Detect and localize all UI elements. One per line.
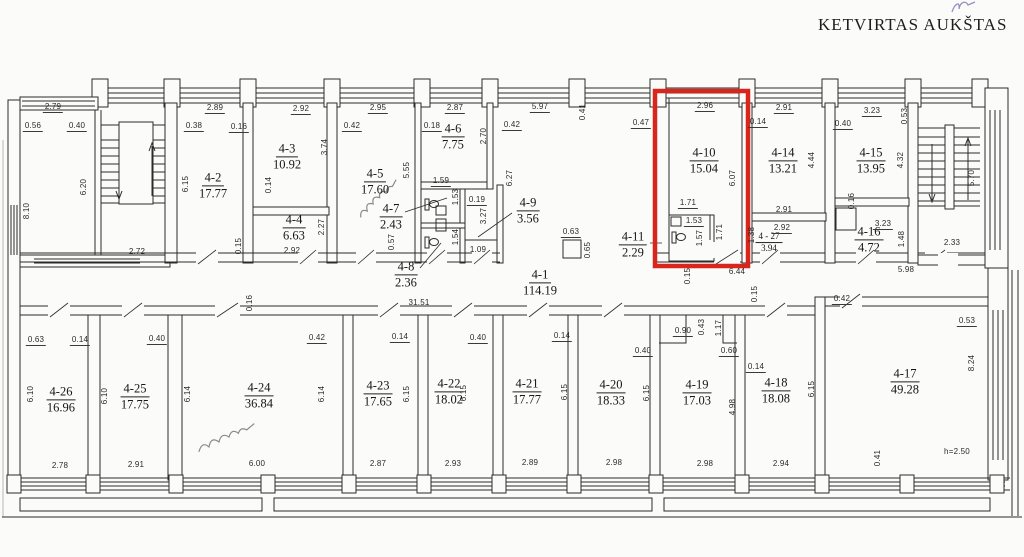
dim-label: 5.97: [530, 103, 550, 113]
room-area: 13.21: [769, 162, 797, 176]
room-label-4-9: 4-93.56: [517, 196, 540, 225]
dim-label: 4.44: [808, 152, 816, 168]
dim-label: 31.51: [408, 299, 429, 307]
room-area: 18.08: [762, 392, 790, 406]
dim-label: 8.24: [968, 355, 976, 371]
dim-label: 0.65: [584, 242, 592, 258]
room-id: 4-15: [857, 146, 886, 161]
room-area: 3.56: [517, 212, 539, 226]
room-area: 49.28: [891, 383, 919, 397]
south-wall: [2, 475, 1022, 517]
room-area: 16.96: [47, 401, 75, 415]
room-label-4-27: 4 - 273.94: [756, 232, 783, 254]
room-label-4-3: 4-310.92: [273, 142, 301, 171]
page-title: KETVIRTAS AUKŠTAS: [818, 15, 1007, 35]
dim-label: 2.79: [43, 103, 63, 113]
room-label-4-25: 4-2517.75: [121, 382, 150, 411]
dim-label: 2.72: [129, 248, 145, 256]
dim-label: 6.20: [80, 179, 88, 195]
room-label-4-21: 4-2117.77: [513, 377, 542, 406]
dim-label: 0.14: [265, 177, 273, 193]
room-label-4-26: 4-2616.96: [47, 385, 76, 414]
room-label-4-6: 4-67.75: [442, 122, 465, 151]
dim-label: 6.10: [101, 388, 109, 404]
dim-label: 0.14: [748, 118, 768, 128]
dim-label: 0.57: [388, 234, 396, 250]
room-area: 17.77: [513, 393, 541, 407]
dim-label: 1.17: [715, 320, 723, 336]
dim-label: 0.38: [184, 122, 204, 132]
dim-label: 1.53: [452, 189, 460, 205]
dim-label: 2.87: [370, 460, 386, 468]
room-area: 17.77: [199, 187, 227, 201]
dim-label: 0.14: [552, 332, 572, 342]
dim-label: 0.14: [746, 363, 766, 373]
east-balcony-lines: [1012, 270, 1018, 516]
east-wall: [985, 88, 1018, 516]
dim-label: 6.15: [182, 176, 190, 192]
dim-label: 0.60: [719, 347, 739, 357]
dim-label: 0.63: [26, 336, 46, 346]
dim-label: 4.98: [729, 399, 737, 415]
dim-label: 1.71: [716, 224, 724, 240]
balcony-band: [274, 498, 652, 511]
dim-label: 6.14: [184, 386, 192, 402]
dim-label: 0.15: [235, 238, 243, 254]
dim-label: 3.74: [321, 139, 329, 155]
room-label-4-20: 4-2018.33: [597, 378, 626, 407]
dim-label: 2.89: [205, 104, 225, 114]
room-id: 4-21: [513, 377, 542, 392]
dim-label: 6.44: [729, 268, 745, 276]
dim-label: 6.15: [808, 381, 816, 397]
dim-label: 0.40: [468, 334, 488, 344]
room-id: 4-18: [762, 376, 791, 391]
dim-label: 0.40: [67, 122, 87, 132]
dim-label: 0.15: [751, 286, 759, 302]
room-id: 4-1: [529, 268, 552, 283]
room-area: 15.04: [690, 162, 718, 176]
dim-label: 5.98: [898, 266, 914, 274]
room-area: 2.36: [395, 276, 417, 290]
room-area: 17.65: [364, 395, 392, 409]
corridor-column: [563, 240, 581, 258]
dim-label: 6.15: [643, 385, 651, 401]
dim-label: 3.23: [873, 220, 893, 230]
room-label-4-2: 4-217.77: [199, 171, 227, 200]
balcony-band: [664, 498, 990, 511]
room-area: 17.03: [683, 394, 711, 408]
dim-label: 0.42: [502, 121, 522, 131]
room-id: 4-2: [202, 171, 225, 186]
dim-label: 0.43: [698, 319, 706, 335]
dim-label: 2.91: [128, 461, 144, 469]
dim-label: 6.00: [249, 460, 265, 468]
room-area: 17.75: [121, 398, 149, 412]
dim-label: 1.57: [696, 230, 704, 246]
room-area: 10.92: [273, 158, 301, 172]
room-id: 4-8: [395, 260, 418, 275]
dim-label: 0.41: [579, 104, 587, 120]
room-id: 4-20: [597, 378, 626, 393]
dim-label: 6.15: [403, 386, 411, 402]
room-id: 4-23: [364, 379, 393, 394]
dim-label: 0.15: [684, 268, 692, 284]
room-label-4-24: 4-2436.84: [245, 381, 274, 410]
dim-label: 3.23: [862, 107, 882, 117]
room-id: 4-9: [517, 196, 540, 211]
dim-label: 3.27: [480, 208, 488, 224]
room-area: 17.60: [361, 183, 389, 197]
dim-label: 2.78: [52, 462, 68, 470]
room-area: 2.43: [380, 218, 402, 232]
height-note: h=2.50: [944, 448, 970, 456]
room-id: 4-17: [891, 367, 920, 382]
left-staircase: [20, 110, 170, 267]
dim-label: 5.70: [968, 170, 976, 186]
room-label-4-23: 4-2317.65: [364, 379, 393, 408]
floorplan-page: KETVIRTAS AUKŠTAS 4-1114.19 4-217.77 4-3…: [0, 0, 1024, 557]
dim-label: 0.42: [342, 122, 362, 132]
room-label-4-4: 4-46.63: [283, 213, 306, 242]
room-label-4-14: 4-1413.21: [769, 146, 798, 175]
dim-label: 0.47: [631, 119, 651, 129]
dim-label: 1.53: [684, 217, 704, 227]
room-area: 18.33: [597, 394, 625, 408]
room-id: 4-14: [769, 146, 798, 161]
dim-label: 0.42: [832, 295, 852, 305]
dim-label: 2.92: [772, 224, 792, 234]
dim-label: 6.07: [729, 170, 737, 186]
dim-label: 2.94: [773, 460, 789, 468]
dim-label: 2.70: [480, 128, 488, 144]
room-area: 13.95: [857, 162, 885, 176]
pencil-mark: [952, 2, 975, 12]
dim-label: 0.40: [147, 335, 167, 345]
room-label-4-15: 4-1513.95: [857, 146, 886, 175]
room-id: 4-25: [121, 382, 150, 397]
toilet-icon: [425, 237, 439, 248]
dim-label: 2.91: [774, 104, 794, 114]
dim-label: 2.87: [445, 104, 465, 114]
dim-label: 1.09: [470, 246, 486, 254]
dim-label: 8.10: [23, 203, 31, 219]
dim-label: 6.10: [27, 386, 35, 402]
dim-label: 0.16: [229, 123, 249, 133]
dim-label: 0.40: [833, 120, 853, 130]
room-area: 4.72: [858, 241, 880, 255]
dim-label: 0.19: [467, 196, 487, 206]
dim-label: 0.14: [390, 333, 410, 343]
balcony-band: [20, 498, 262, 511]
dim-label: 4.32: [897, 152, 905, 168]
dim-label: 0.18: [422, 122, 442, 132]
room-label-4-7: 4-72.43: [380, 202, 403, 231]
dim-label: 2.27: [318, 219, 326, 235]
dim-label: 0.16: [848, 193, 856, 209]
dim-label: 2.93: [445, 460, 461, 468]
room-id: 4-19: [683, 378, 712, 393]
dim-label: 1.48: [898, 231, 906, 247]
dim-label: 2.92: [291, 105, 311, 115]
dim-label: 6.15: [460, 385, 468, 401]
room-area: 114.19: [523, 284, 557, 298]
dim-label: 0.90: [673, 327, 693, 337]
room-area: 36.84: [245, 397, 273, 411]
dim-label: 2.98: [697, 460, 713, 468]
dim-label: 0.53: [901, 108, 909, 124]
west-wall: [8, 97, 98, 480]
dim-label: 0.56: [23, 122, 43, 132]
dim-label: 1.71: [678, 199, 698, 209]
room-label-4-17: 4-1749.28: [891, 367, 920, 396]
room-area: 7.75: [442, 138, 464, 152]
room-area: 6.63: [283, 229, 305, 243]
dim-label: 0.53: [957, 317, 977, 327]
dim-label: 0.42: [307, 334, 327, 344]
dim-label: 1.38: [748, 227, 756, 243]
room-label-4-1: 4-1114.19: [523, 268, 557, 297]
room-id: 4-7: [380, 202, 403, 217]
dim-label: 6.14: [318, 386, 326, 402]
dim-label: 2.96: [695, 102, 715, 112]
room-label-4-10: 4-1015.04: [690, 146, 719, 175]
dim-label: 2.98: [606, 459, 622, 467]
dim-label: 2.92: [284, 247, 300, 255]
room-id: 4-26: [47, 385, 76, 400]
dim-label: 0.63: [561, 228, 581, 238]
dim-label: 2.89: [522, 459, 538, 467]
room-id: 4-4: [283, 213, 306, 228]
dim-label: 0.16: [246, 295, 254, 311]
room-label-4-18: 4-1818.08: [762, 376, 791, 405]
room-id: 4-24: [245, 381, 274, 396]
dim-label: 2.33: [944, 239, 960, 247]
room-label-4-19: 4-1917.03: [683, 378, 712, 407]
dim-label: 0.41: [874, 450, 882, 466]
dim-label: 1.54: [452, 229, 460, 245]
dim-label: 6.27: [506, 170, 514, 186]
dim-label: 6.15: [561, 384, 569, 400]
room-id: 4-3: [276, 142, 299, 157]
room-area: 2.29: [622, 246, 644, 260]
room-id: 4-11: [619, 230, 647, 245]
floorplan-drawing: [0, 0, 1024, 557]
room-label-4-5: 4-517.60: [361, 167, 389, 196]
dim-label: 2.95: [368, 104, 388, 114]
room-label-4-11: 4-112.29: [619, 230, 647, 259]
dim-label: 0.40: [633, 347, 653, 357]
room-area: 3.94: [761, 244, 777, 254]
dim-label: 0.14: [70, 336, 90, 346]
room-id: 4-6: [442, 122, 465, 137]
dim-label: 2.91: [776, 206, 792, 214]
room-id: 4-10: [690, 146, 719, 161]
dim-label: 5.55: [403, 162, 411, 178]
room-id: 4-5: [364, 167, 387, 182]
dim-label: 1.59: [431, 177, 451, 187]
room-label-4-8: 4-82.36: [395, 260, 418, 289]
